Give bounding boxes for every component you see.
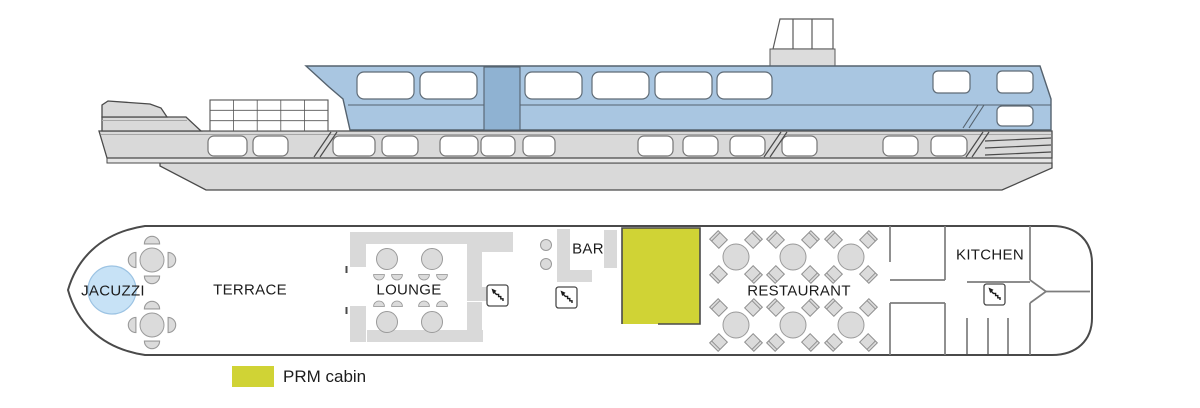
prm-cabin-swatch <box>232 366 274 387</box>
prm-cabin-area <box>622 228 700 324</box>
stairs-icon <box>556 287 577 308</box>
label-bar: BAR <box>572 241 604 258</box>
superstructure-pillar <box>484 67 520 130</box>
label-lounge: LOUNGE <box>376 282 441 299</box>
label-restaurant: RESTAURANT <box>747 283 851 300</box>
legend: PRM cabin <box>232 366 366 387</box>
mast <box>770 19 835 66</box>
bar-stool <box>541 259 552 270</box>
bar-stool <box>541 240 552 251</box>
ship-side-profile <box>99 19 1052 190</box>
legend-label: PRM cabin <box>283 367 366 387</box>
stairs-icon <box>487 285 508 306</box>
hull-stripe <box>107 158 1052 163</box>
ship-diagram <box>0 0 1200 408</box>
fore-railing-grid <box>210 100 328 131</box>
lower-hull <box>160 163 1052 190</box>
bow-deck <box>102 117 201 131</box>
label-kitchen: KITCHEN <box>956 247 1024 264</box>
label-jacuzzi: JACUZZI <box>81 283 145 300</box>
deck-plan-page: JACUZZI TERRACE LOUNGE BAR RESTAURANT KI… <box>0 0 1200 408</box>
label-terrace: TERRACE <box>213 282 287 299</box>
stairs-icon <box>984 284 1005 305</box>
bow-structure <box>102 101 167 117</box>
